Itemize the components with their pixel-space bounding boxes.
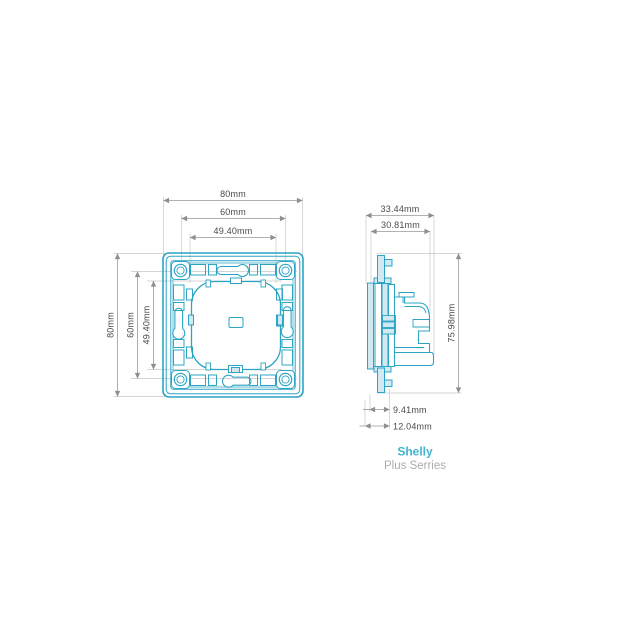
dim-side-height: 75.98mm (447, 304, 457, 343)
module-opening (192, 282, 281, 370)
side-view (368, 256, 434, 393)
series-label: Plus Serries (384, 460, 446, 472)
technical-drawing: 80mm 60mm 49.40mm 80mm 60mm 49.40mm 33.4… (0, 0, 625, 625)
center-latch (229, 318, 243, 328)
dim-front-width-mid: 60mm (220, 207, 246, 217)
side-body-details (395, 297, 430, 353)
side-body-profile (395, 297, 434, 366)
dim-front-height-outer: 80mm (106, 312, 116, 338)
dim-front-height-inner: 49.40mm (142, 306, 152, 345)
caption: Shelly Plus Serries (384, 445, 446, 473)
side-rear-hook (399, 293, 414, 298)
dim-side-depth-outer: 33.44mm (381, 204, 420, 214)
dim-front-height-mid: 60mm (126, 312, 136, 338)
dim-side-tab-depth: 9.41mm (393, 405, 427, 415)
brand-label: Shelly (397, 445, 433, 459)
dim-front-width-inner: 49.40mm (214, 226, 253, 236)
front-view (163, 253, 303, 397)
module-tabs (189, 278, 283, 373)
dimension-lines (118, 201, 459, 427)
side-clip (383, 316, 396, 335)
dim-front-width-outer: 80mm (220, 189, 246, 199)
dim-side-base-depth: 12.04mm (393, 422, 432, 432)
dim-side-depth-inner: 30.81mm (381, 220, 420, 230)
drawing-canvas: 80mm 60mm 49.40mm 80mm 60mm 49.40mm 33.4… (0, 0, 625, 625)
